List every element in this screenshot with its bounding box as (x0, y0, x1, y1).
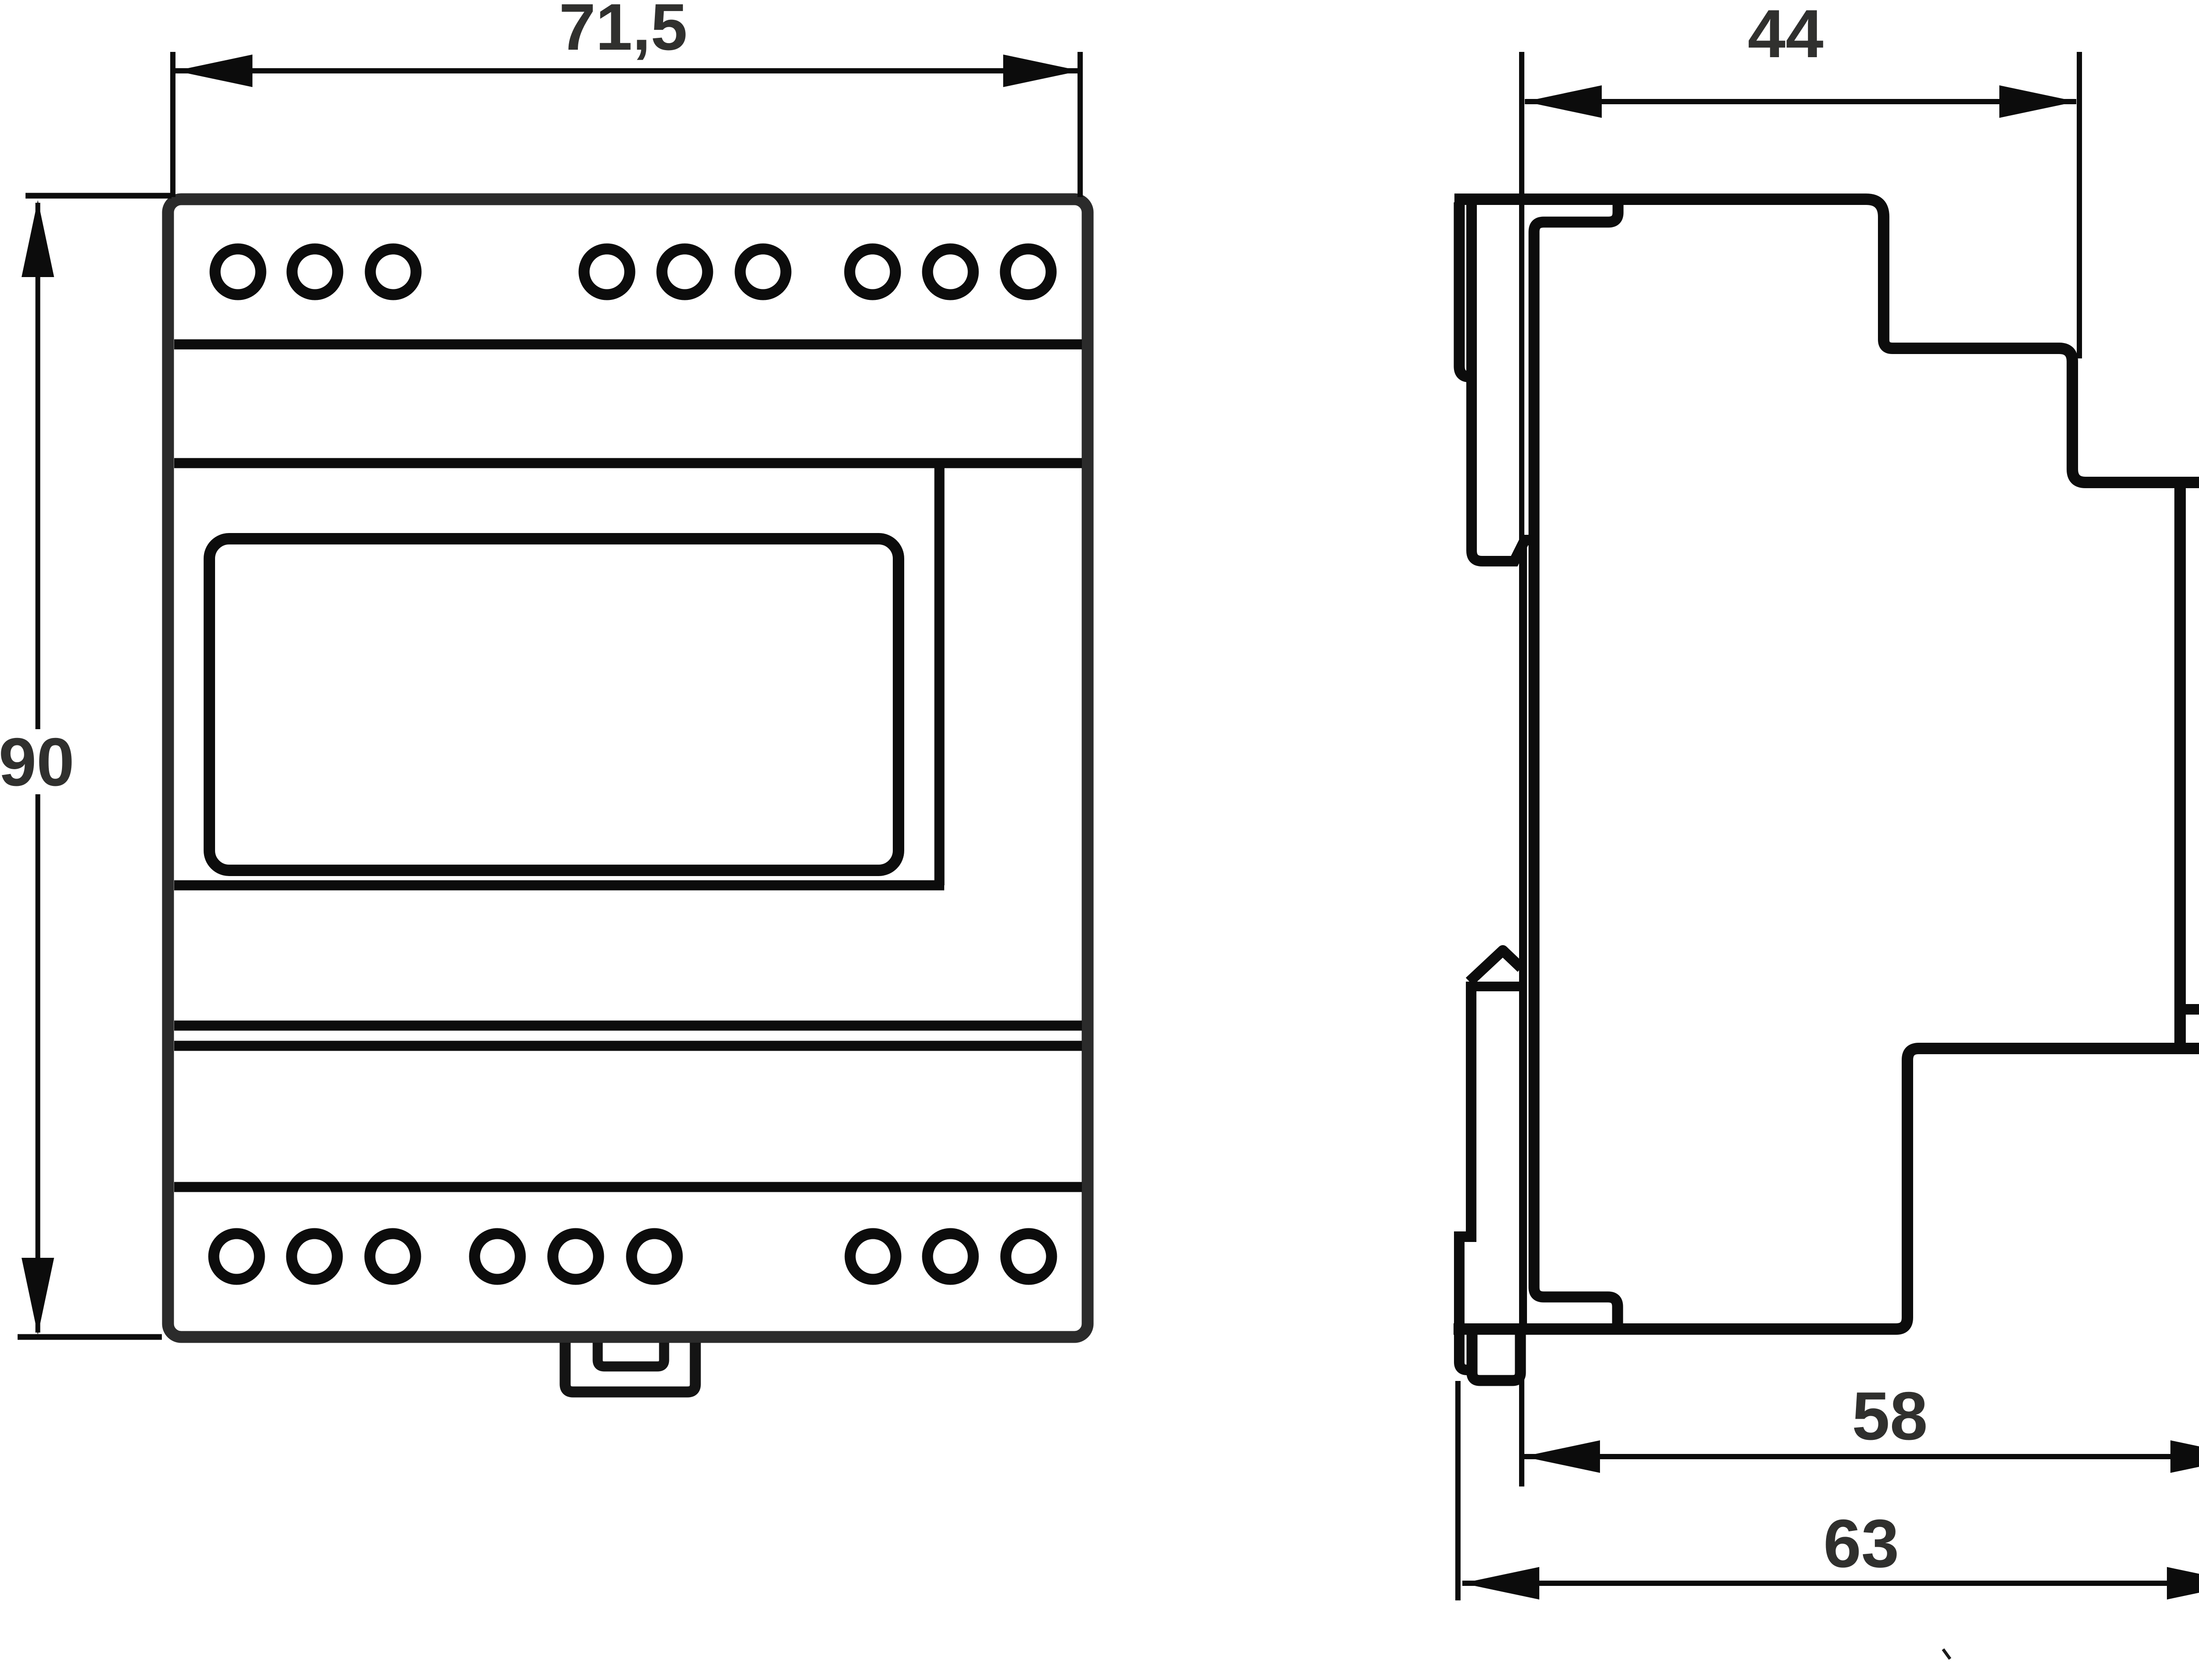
svg-text:58: 58 (1852, 1378, 1928, 1454)
svg-text:71,5: 71,5 (559, 0, 687, 64)
svg-text:63: 63 (1823, 1505, 1899, 1581)
svg-text:44: 44 (1748, 0, 1823, 72)
svg-text:90: 90 (0, 724, 74, 800)
